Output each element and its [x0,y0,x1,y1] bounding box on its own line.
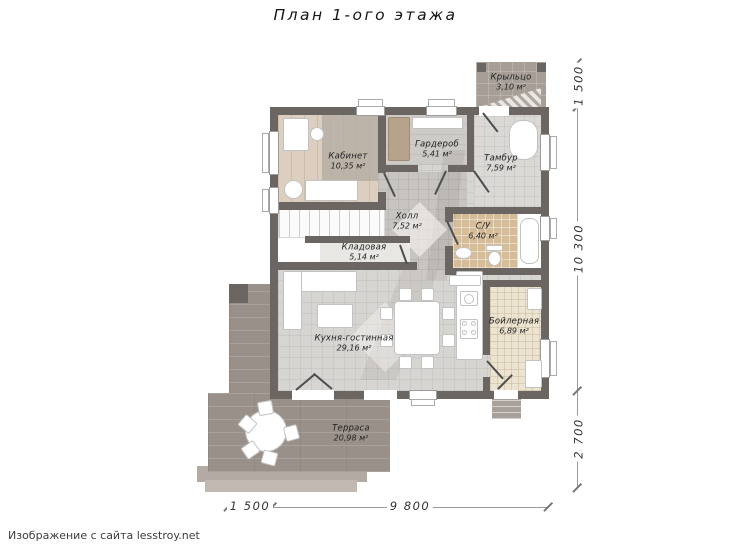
wardrobe-shelf [412,117,463,129]
window-sill [550,341,557,376]
room-label-kitchen-living: Кухня-гостинная 29,16 м² [314,333,393,352]
wall-vestibule-west [467,115,474,172]
porch-column [477,63,486,72]
window-sill [262,189,269,212]
living-sofa-vertical [283,271,302,330]
wall-bathroom-north [445,207,541,214]
dining-chair [380,307,393,320]
wall-wardrobe-south [386,165,418,172]
terrace-chair [257,400,274,416]
water-heater [525,360,542,388]
watermark: Изображение с сайта lesstroy.net [8,529,200,542]
window [540,134,550,171]
dim-bottom-left: 1 500 [227,500,273,513]
window-sill [411,399,435,406]
terrace-column [229,284,248,303]
room-label-office: Кабинет 10,35 м² [328,151,367,170]
dining-chair [442,334,455,347]
dim-right-top: 1 500 [573,63,586,109]
window [356,106,385,116]
room-label-wardrobe: Гардероб 5,41 м² [415,139,459,158]
stairs [278,207,385,238]
kitchen-sink-basin [464,294,474,304]
dining-chair [442,307,455,320]
kitchen-appliance-row [449,275,481,286]
page-title: План 1-ого этажа [0,6,731,24]
wardrobe-closet [388,117,410,161]
wall-storage-south [270,262,417,270]
room-label-porch: Крыльцо 3,10 м² [491,72,532,91]
window-sill [358,99,383,107]
wall-office-south [270,202,385,210]
door-opening-terrace [292,390,334,400]
window-sill [550,136,557,169]
room-label-storage: Кладовая 5,14 м² [342,242,387,261]
porch-column [537,63,546,72]
stove-burner [462,330,467,335]
dim-right-bottom: 2 700 [573,416,586,462]
bathtub [520,218,539,264]
window [540,216,550,241]
terrace-step-inner [205,480,357,492]
office-rug [322,115,378,181]
floorplan-canvas: План 1-ого этажа [0,0,731,548]
coffee-table [317,304,353,328]
wall-boiler-north [483,280,541,287]
dining-table [394,301,440,355]
door-opening-garden [364,390,397,400]
stove-burner [471,321,476,326]
stove-burner [462,321,467,326]
dining-chair [421,356,434,369]
room-label-vestibule: Тамбур 7,59 м² [484,153,518,172]
window-sill [550,218,557,239]
office-armchair [284,180,303,199]
dining-chair [399,356,412,369]
bathroom-sink [455,247,472,259]
wall-office-east [378,115,386,173]
exterior-steps [492,399,521,419]
stove-burner [471,330,476,335]
window [269,187,279,214]
boiler-unit [527,288,542,310]
window-sill [262,133,269,173]
toilet-bowl [488,251,501,266]
room-label-hall: Холл 7,52 м² [392,211,422,230]
dining-chair [421,288,434,301]
office-sofa [305,180,358,201]
wall-bathroom-west [445,246,453,268]
window [426,106,457,116]
dining-chair [399,288,412,301]
office-desk [283,118,309,151]
window [269,131,279,175]
room-label-terrace: Терраса 20,98 м² [332,423,370,442]
dim-bottom-right: 9 800 [387,500,433,513]
room-label-boiler: Бойлерная 6,89 м² [489,316,539,335]
wall-boiler-west [483,377,490,391]
dim-right-middle: 10 300 [573,222,586,276]
window-sill [428,99,455,107]
room-label-bathroom: С/У 6,40 м² [468,221,498,240]
office-chair [310,127,324,141]
